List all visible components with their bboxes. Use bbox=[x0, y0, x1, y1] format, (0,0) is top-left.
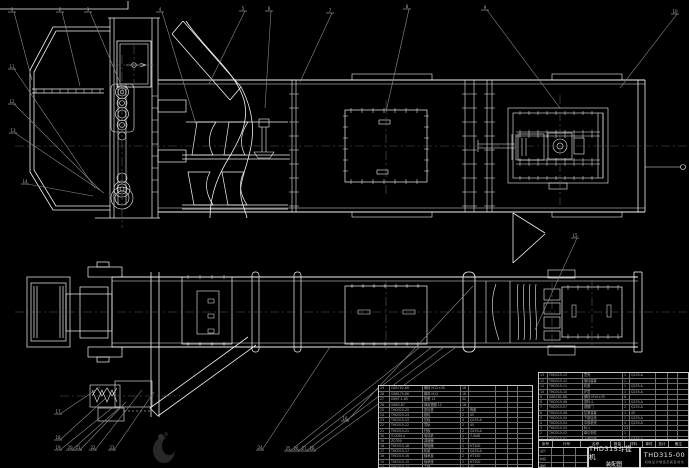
bom-cell: THD315-12 bbox=[548, 379, 583, 383]
org-caption: 机械设计制造及其自动化 bbox=[645, 460, 685, 464]
bom-cell: 2 bbox=[461, 408, 469, 412]
bom-cell: THD315-07 bbox=[548, 405, 583, 409]
drawing-number: THD315-00 bbox=[644, 451, 685, 459]
bom-cell: 16 bbox=[379, 454, 390, 458]
callout-number: 19 bbox=[55, 445, 61, 450]
bom-cell bbox=[496, 418, 508, 422]
bom-cell bbox=[496, 408, 508, 412]
bom-cell bbox=[496, 403, 508, 407]
bom-cell: GB5782-86 bbox=[548, 395, 583, 399]
bom-cell: THD315-21 bbox=[390, 429, 423, 433]
bom-cell bbox=[518, 386, 532, 391]
casing-transition-curves bbox=[186, 21, 253, 218]
bom-cell: 橡胶 bbox=[469, 408, 496, 412]
bom-cell bbox=[496, 429, 508, 433]
bom-cell bbox=[508, 429, 518, 433]
bom-row: 21THD315-21托板2Q235-A bbox=[379, 428, 532, 433]
bom-cell: 7.5kW bbox=[469, 434, 496, 438]
side-view bbox=[30, 18, 686, 263]
sig-cell bbox=[564, 463, 576, 468]
bom-header-cell: 备注 bbox=[669, 441, 688, 447]
bom-cell: 电动机 bbox=[423, 434, 461, 438]
bom-row: 27GB97.1-85垫圈 1232 bbox=[379, 396, 532, 401]
bom-cell: 8 bbox=[539, 400, 548, 404]
bom-cell: 7 bbox=[539, 405, 548, 409]
bom-cell: 17 bbox=[379, 449, 390, 453]
bom-cell: THD315-17 bbox=[390, 449, 423, 453]
bom-cell: 下部区段 bbox=[583, 416, 623, 420]
bom-cell: THD315-16 bbox=[390, 454, 423, 458]
bom-cell: 32 bbox=[461, 397, 469, 401]
bom-cell: ZQ350 bbox=[390, 439, 423, 443]
bom-cell bbox=[496, 397, 508, 401]
bom-cell bbox=[668, 384, 678, 388]
bom-cell bbox=[678, 416, 688, 420]
bom-cell bbox=[678, 373, 688, 378]
bom-cell: 28 bbox=[379, 392, 390, 396]
bom-cell: THD315-05 bbox=[548, 416, 583, 420]
bom-cell bbox=[656, 426, 668, 430]
callout-number: 7 bbox=[329, 8, 332, 13]
callout-number: 17 bbox=[55, 409, 61, 414]
bom-header-cell: 序号 bbox=[539, 441, 553, 447]
bom-cell bbox=[469, 397, 496, 401]
bom-cell bbox=[656, 390, 668, 394]
bom-cell: THD315-11 bbox=[548, 384, 583, 388]
bom-cell: 2 bbox=[461, 413, 469, 417]
bom-cell: 24 bbox=[379, 413, 390, 417]
callout-number: 11 bbox=[9, 64, 15, 69]
bom-cell bbox=[630, 426, 656, 430]
bom-cell: 4 bbox=[539, 421, 548, 425]
bom-cell: 19 bbox=[379, 439, 390, 443]
bom-cell: 6 bbox=[539, 411, 548, 415]
bom-cell bbox=[469, 392, 496, 396]
sig-cell bbox=[552, 463, 564, 468]
callout-number: 8 bbox=[406, 4, 409, 9]
bom-cell bbox=[668, 431, 678, 435]
bom-cell: THD315-24 bbox=[390, 413, 423, 417]
bom-cell bbox=[668, 373, 678, 378]
bom-cell: 4 bbox=[623, 421, 630, 425]
bom-cell: 1 bbox=[461, 444, 469, 448]
sig-row: 设计 bbox=[539, 448, 587, 455]
bom-cell: 22 bbox=[379, 423, 390, 427]
title-block: THD315斗提机 装配图 bbox=[588, 447, 640, 468]
bom-cell bbox=[469, 439, 496, 443]
bom-cell: 2 bbox=[461, 454, 469, 458]
bom-cell: 1 bbox=[623, 431, 630, 435]
bom-cell bbox=[508, 449, 518, 453]
bom-cell: 20 bbox=[379, 434, 390, 438]
bom-row: 7THD315-07观察门2Q235-A bbox=[539, 404, 688, 409]
bom-cell: THD315-03 bbox=[548, 426, 583, 430]
callout-number: 5 bbox=[242, 6, 245, 11]
bom-cell bbox=[496, 386, 508, 391]
bom-cell bbox=[496, 413, 508, 417]
drawing-number-block: THD315-00 机械设计制造及其自动化 bbox=[640, 447, 689, 468]
bom-cell: 密封垫 bbox=[423, 408, 461, 412]
bom-cell: 2 bbox=[461, 423, 469, 427]
callout-number: 9 bbox=[484, 5, 487, 10]
bom-cell: Q235-A bbox=[469, 449, 496, 453]
bom-cell: HT200 bbox=[469, 444, 496, 448]
bom-cell: Q235-A bbox=[469, 429, 496, 433]
sig-cell bbox=[564, 448, 576, 455]
bom-cell bbox=[668, 400, 678, 404]
bom-cell bbox=[508, 439, 518, 443]
bom-cell: 托板 bbox=[423, 429, 461, 433]
bom-cell bbox=[518, 449, 532, 453]
callout-number: 12 bbox=[9, 99, 15, 104]
bom-cell: 16 bbox=[461, 386, 469, 391]
callout-number: 26 bbox=[293, 446, 299, 451]
bucket-bolt-detail bbox=[254, 119, 274, 158]
bom-row: 13THD315-13罩壳1Q235-A bbox=[539, 373, 688, 378]
bom-cell: 16 bbox=[461, 392, 469, 396]
bom-cell: THD315-06 bbox=[548, 411, 583, 415]
bom-cell: 1 bbox=[623, 390, 630, 394]
bom-cell: 导轨 bbox=[423, 423, 461, 427]
bom-row: 18THD315-18联轴器1HT200 bbox=[379, 443, 532, 448]
bolt-ticks bbox=[36, 89, 618, 346]
bom-row: 10THD315-10护罩1Q235-A bbox=[539, 389, 688, 394]
callout-number: 20 bbox=[67, 445, 73, 450]
bom-cell bbox=[496, 434, 508, 438]
bom-cell bbox=[656, 400, 668, 404]
bom-cell: 3 bbox=[539, 426, 548, 430]
viewport-frame-corner bbox=[0, 1, 128, 9]
bom-cell bbox=[678, 390, 688, 394]
parts-list-right: 13THD315-13罩壳1Q235-A12THD315-12驱动装置111TH… bbox=[538, 372, 689, 440]
bom-cell: 拉紧装置 bbox=[583, 411, 623, 415]
callout-number: 24 bbox=[257, 445, 263, 450]
callout-number: 4 bbox=[159, 7, 162, 12]
bom-cell: THD315-22 bbox=[390, 423, 423, 427]
bom-cell: 2 bbox=[461, 460, 469, 464]
bom-cell: HT200 bbox=[469, 460, 496, 464]
bom-cell bbox=[496, 439, 508, 443]
bom-cell: 1 bbox=[623, 379, 630, 383]
bom-cell bbox=[496, 460, 508, 464]
chain-sprocket-assembly bbox=[111, 84, 134, 209]
callout-number: 13 bbox=[10, 128, 16, 133]
bom-cell: 驱动装置 bbox=[583, 379, 623, 383]
bom-cell bbox=[656, 405, 668, 409]
bom-cell bbox=[508, 444, 518, 448]
bom-cell bbox=[518, 397, 532, 401]
bom-cell: HT150 bbox=[469, 454, 496, 458]
bom-cell bbox=[656, 384, 668, 388]
bom-row: 29GB5782-86螺栓 M12×4516 bbox=[379, 386, 532, 391]
bom-cell bbox=[518, 408, 532, 412]
sig-cell: 校核 bbox=[539, 456, 552, 462]
bom-cell: GB5782-86 bbox=[390, 386, 423, 391]
sig-cell bbox=[564, 456, 576, 462]
bom-cell: THD315-25 bbox=[390, 408, 423, 412]
callout-number: 21 bbox=[75, 445, 81, 450]
bom-cell: 8 bbox=[623, 395, 630, 399]
bom-cell: 1 bbox=[623, 373, 630, 378]
signature-grid: 设计校核审核 bbox=[538, 447, 588, 468]
bom-cell: 机座 bbox=[583, 384, 623, 388]
bom-cell bbox=[630, 379, 656, 383]
bom-cell: 45 bbox=[469, 413, 496, 417]
bom-cell bbox=[668, 426, 678, 430]
bom-cell bbox=[678, 384, 688, 388]
bom-cell: Q235-A bbox=[630, 384, 656, 388]
bom-cell bbox=[678, 431, 688, 435]
bom-cell bbox=[518, 403, 532, 407]
sig-cell bbox=[552, 456, 564, 462]
cad-drawing-canvas[interactable]: 1234567891011121314151617181920212223242… bbox=[0, 0, 689, 468]
bom-cell bbox=[668, 390, 678, 394]
bom-cell: 26 bbox=[379, 403, 390, 407]
sig-cell bbox=[552, 448, 564, 455]
bom-cell bbox=[508, 408, 518, 412]
bom-cell bbox=[668, 405, 678, 409]
bom-cell bbox=[656, 421, 668, 425]
bom-cell: 螺栓 M12×45 bbox=[423, 386, 461, 391]
bom-cell bbox=[656, 395, 668, 399]
bom-cell: Q235-A bbox=[630, 390, 656, 394]
bom-cell: THD315-10 bbox=[548, 390, 583, 394]
callout-number: 1 bbox=[11, 7, 14, 12]
bom-row: 2THD315-02牵引构件1 bbox=[539, 430, 688, 435]
bom-cell: 1 bbox=[623, 384, 630, 388]
sheet-name: 装配图 bbox=[606, 462, 623, 468]
bom-cell bbox=[496, 392, 508, 396]
bom-cell: THD315-08 bbox=[548, 400, 583, 404]
bom-cell: GB93-87 bbox=[390, 403, 423, 407]
bom-row: 23THD315-23压板4Q235-A bbox=[379, 417, 532, 422]
bom-cell: 进料斗 bbox=[583, 400, 623, 404]
bom-cell: 1 bbox=[461, 434, 469, 438]
bom-cell: 螺栓 M10×35 bbox=[583, 395, 623, 399]
bom-cell bbox=[668, 395, 678, 399]
bom-row: 8THD315-08进料斗1Q235-A bbox=[539, 399, 688, 404]
bom-cell: 11 bbox=[539, 384, 548, 388]
bom-cell: 1 bbox=[461, 449, 469, 453]
bom-cell: 2 bbox=[623, 405, 630, 409]
bom-cell bbox=[668, 379, 678, 383]
bom-cell: 罩壳 bbox=[583, 373, 623, 378]
bom-row: 22THD315-22导轨245 bbox=[379, 422, 532, 427]
bom-cell bbox=[678, 400, 688, 404]
bom-cell: 1 bbox=[461, 439, 469, 443]
bom-cell bbox=[469, 386, 496, 391]
bom-row: 15THD315-15轴承座2HT200 bbox=[379, 459, 532, 464]
bom-row: 9GB5782-86螺栓 M10×358 bbox=[539, 394, 688, 399]
bom-cell: GB97.1-85 bbox=[390, 397, 423, 401]
bom-cell: 45 bbox=[469, 423, 496, 427]
inlet-door-plan bbox=[182, 277, 232, 344]
bom-cell bbox=[518, 413, 532, 417]
bom-cell bbox=[508, 397, 518, 401]
takeup-section bbox=[478, 108, 686, 189]
bom-cell: THD315-18 bbox=[390, 444, 423, 448]
bom-cell: 弹簧垫圈 12 bbox=[423, 403, 461, 407]
bom-cell bbox=[656, 379, 668, 383]
bom-cell bbox=[496, 449, 508, 453]
bom-cell: 轴承盖 bbox=[423, 454, 461, 458]
bom-cell bbox=[469, 403, 496, 407]
bom-cell: 25 bbox=[379, 408, 390, 412]
bom-cell bbox=[508, 418, 518, 422]
bom-cell: 观察门 bbox=[583, 405, 623, 409]
bom-cell: 5 bbox=[539, 416, 548, 420]
bom-header-cell: 代号 bbox=[553, 441, 581, 447]
bom-cell: THD315-13 bbox=[548, 373, 583, 378]
sig-cell bbox=[576, 448, 587, 455]
callout-number: 3 bbox=[87, 7, 90, 12]
parts-list-left: 29GB5782-86螺栓 M12×451628GB6170-86螺母 M121… bbox=[378, 385, 533, 468]
sig-cell: 设计 bbox=[539, 448, 552, 455]
bom-cell: 15 bbox=[379, 460, 390, 464]
callout-number: 22 bbox=[90, 445, 96, 450]
bom-cell: 23 bbox=[379, 418, 390, 422]
bom-cell bbox=[630, 431, 656, 435]
bom-cell bbox=[508, 454, 518, 458]
bom-cell bbox=[678, 379, 688, 383]
bom-cell: 链轮 bbox=[423, 413, 461, 417]
bom-cell bbox=[656, 411, 668, 415]
sig-row: 校核 bbox=[539, 455, 587, 462]
bom-cell bbox=[678, 411, 688, 415]
bom-cell: 18 bbox=[379, 444, 390, 448]
bom-cell: 1 bbox=[623, 416, 630, 420]
callout-number: 15 bbox=[572, 233, 578, 238]
bom-cell: Y132M-4 bbox=[390, 434, 423, 438]
bom-cell bbox=[656, 373, 668, 378]
bom-cell: 10 bbox=[539, 390, 548, 394]
bom-header-cell: 总计 bbox=[656, 441, 669, 447]
bom-row: 28GB6170-86螺母 M1216 bbox=[379, 391, 532, 396]
callout-number: 23 bbox=[109, 445, 115, 450]
discharge-chute bbox=[172, 21, 241, 100]
bom-row: 5THD315-05下部区段1Q235-A bbox=[539, 415, 688, 420]
bom-cell: 27 bbox=[379, 397, 390, 401]
bom-cell: THD315-23 bbox=[390, 418, 423, 422]
bom-cell: Q235-A bbox=[469, 418, 496, 422]
bom-cell: 21 bbox=[379, 429, 390, 433]
bom-cell: 垫圈 12 bbox=[423, 397, 461, 401]
bom-cell: 联轴器 bbox=[423, 444, 461, 448]
bom-cell bbox=[668, 421, 678, 425]
bom-cell bbox=[668, 411, 678, 415]
bom-row: 17THD315-17机架1Q235-A bbox=[379, 448, 532, 453]
sig-cell: 审核 bbox=[539, 463, 552, 468]
bom-cell: 12 bbox=[539, 379, 548, 383]
bom-cell: THD315-15 bbox=[390, 460, 423, 464]
bom-cell bbox=[518, 418, 532, 422]
bom-row: 25THD315-25密封垫2橡胶 bbox=[379, 407, 532, 412]
elevator-column bbox=[95, 18, 186, 218]
bom-cell bbox=[518, 392, 532, 396]
bom-cell bbox=[656, 431, 668, 435]
bom-cell: THD315-02 bbox=[548, 431, 583, 435]
bom-cell bbox=[518, 460, 532, 464]
bom-cell: 轴承座 bbox=[423, 460, 461, 464]
bom-cell bbox=[678, 421, 688, 425]
bom-cell: Q235-A bbox=[630, 400, 656, 404]
bom-cell bbox=[496, 423, 508, 427]
bom-cell: Q235-A bbox=[630, 421, 656, 425]
product-title: THD315斗提机 bbox=[589, 446, 639, 462]
buckets-upper bbox=[182, 122, 290, 159]
bom-cell bbox=[630, 395, 656, 399]
bom-cell bbox=[508, 392, 518, 396]
bom-cell bbox=[496, 444, 508, 448]
bom-cell: 29 bbox=[379, 386, 390, 391]
callout-number: 10 bbox=[672, 9, 678, 14]
bom-cell: Q235-A bbox=[630, 373, 656, 378]
hopper-chute-plan bbox=[150, 337, 256, 416]
sig-row: 审核 bbox=[539, 462, 587, 468]
callout-number: 18 bbox=[55, 435, 61, 440]
callout-number: 2 bbox=[59, 7, 62, 12]
bom-cell bbox=[518, 454, 532, 458]
bom-cell bbox=[508, 413, 518, 417]
bom-cell: Q235-A bbox=[630, 416, 656, 420]
sig-cell bbox=[576, 463, 587, 468]
bom-cell bbox=[678, 395, 688, 399]
bom-cell: 2 bbox=[461, 429, 469, 433]
bom-cell bbox=[508, 460, 518, 464]
bom-cell: 螺母 M12 bbox=[423, 392, 461, 396]
bom-row: 12THD315-12驱动装置1 bbox=[539, 378, 688, 383]
bom-cell: 1 bbox=[623, 411, 630, 415]
bom-cell: 1 bbox=[623, 400, 630, 404]
bom-cell bbox=[518, 439, 532, 443]
smudge-mark bbox=[153, 432, 176, 463]
callout-number: 27 bbox=[301, 446, 307, 451]
callout-number: 14 bbox=[22, 179, 28, 184]
bom-cell bbox=[508, 434, 518, 438]
bom-row: 19ZQ350减速器1 bbox=[379, 438, 532, 443]
bom-cell: 45 bbox=[630, 411, 656, 415]
bom-cell: 中部机壳 bbox=[583, 421, 623, 425]
bom-row: 11THD315-11机座1Q235-A bbox=[539, 383, 688, 388]
buckets-lower bbox=[182, 172, 288, 209]
bom-cell: 13 bbox=[539, 373, 548, 378]
bom-cell: 16 bbox=[461, 403, 469, 407]
bom-cell bbox=[518, 423, 532, 427]
bom-row: 26GB93-87弹簧垫圈 1216 bbox=[379, 402, 532, 407]
bom-row: 16THD315-16轴承盖2HT150 bbox=[379, 453, 532, 458]
bom-cell bbox=[496, 454, 508, 458]
bom-cell bbox=[678, 405, 688, 409]
gearbox-coupling bbox=[90, 381, 152, 421]
bom-cell: 牵引构件 bbox=[583, 431, 623, 435]
bom-cell bbox=[678, 426, 688, 430]
bom-cell: THD315-04 bbox=[548, 421, 583, 425]
bom-cell bbox=[656, 416, 668, 420]
bom-cell: 9 bbox=[539, 395, 548, 399]
bom-cell bbox=[668, 416, 678, 420]
bom-cell bbox=[508, 423, 518, 427]
bom-header-cell: 单件 bbox=[643, 441, 656, 447]
bom-row: 4THD315-04中部机壳4Q235-A bbox=[539, 420, 688, 425]
sig-cell bbox=[576, 456, 587, 462]
bom-cell: GB6170-86 bbox=[390, 392, 423, 396]
bom-row: 6THD315-06拉紧装置145 bbox=[539, 410, 688, 415]
bom-row: 14THD315-14主轴145 bbox=[379, 464, 532, 468]
bom-row: 24THD315-24链轮245 bbox=[379, 412, 532, 417]
bom-cell bbox=[508, 403, 518, 407]
bom-row: 20Y132M-4电动机17.5kW bbox=[379, 433, 532, 438]
bom-cell: 减速器 bbox=[423, 439, 461, 443]
